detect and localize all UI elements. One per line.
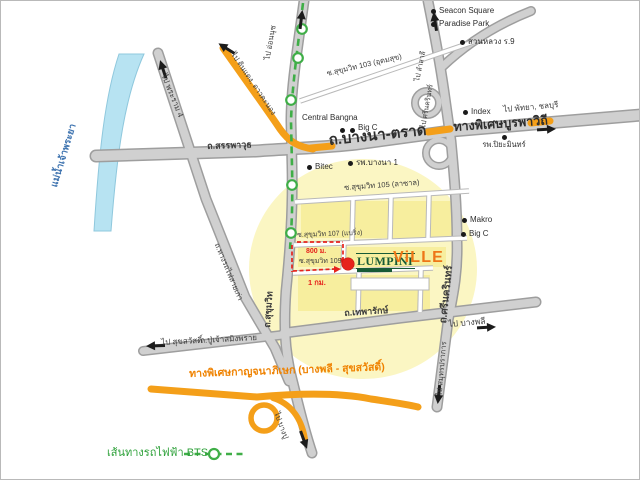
poi-central-bangna: Central Bangna — [302, 114, 358, 122]
poi-label: Paradise Park — [439, 20, 489, 28]
poi-paradise-park: Paradise Park — [431, 20, 489, 28]
location-dot — [461, 232, 466, 237]
poi-label: Seacon Square — [439, 7, 494, 15]
poi-label: Index — [471, 108, 491, 116]
distance-800m: 800 ม. — [306, 248, 326, 255]
location-dot — [340, 128, 345, 133]
soi-label-109: ซ.สุขุมวิท 109 — [299, 258, 342, 265]
poi-label: รพ.บางนา 1 — [356, 159, 398, 167]
poi-label: รพ.ปิยะมินทร์ — [482, 141, 525, 149]
map-graphics — [1, 1, 640, 480]
legend-bts-station — [209, 449, 219, 459]
location-dot — [431, 22, 436, 27]
location-dot — [348, 161, 353, 166]
poi-label: Big C — [469, 230, 489, 238]
poi-bangna1-hospital: รพ.บางนา 1 — [348, 159, 398, 167]
location-dot — [460, 40, 465, 45]
poi-bigc-srinakarin: Big C — [461, 230, 489, 238]
poi-piyamin-hospital: รพ.ปิยะมินทร์ — [477, 135, 531, 149]
location-dot — [462, 218, 467, 223]
location-dot — [350, 128, 355, 133]
poi-label: Bitec — [315, 163, 333, 171]
poi-bigc-bangna: Big C — [358, 124, 378, 132]
poi-label: Makro — [470, 216, 492, 224]
project-marker-dot — [342, 258, 355, 271]
poi-makro: Makro — [462, 216, 492, 224]
location-dot — [307, 165, 312, 170]
location-dot — [463, 110, 468, 115]
river-shape — [94, 54, 144, 231]
poi-bitec: Bitec — [307, 163, 333, 171]
poi-label: สวนหลวง ร.9 — [468, 38, 515, 46]
soi-block — [351, 278, 429, 290]
location-map: แม่น้ำเจ้าพระยา ถ.สรรพาวุธ ถ.บางนา-ตราด … — [0, 0, 640, 480]
logo-ville: ViLLE — [393, 250, 444, 266]
poi-index: Index — [463, 108, 491, 116]
legend-bts-label: เส้นทางรถไฟฟ้า BTS — [107, 448, 208, 459]
poi-suanluang-r9: สวนหลวง ร.9 — [460, 38, 515, 46]
poi-seacon-square: Seacon Square — [431, 7, 494, 15]
road-label-sanphawut: ถ.สรรพาวุธ — [207, 140, 252, 151]
location-dot — [431, 9, 436, 14]
logo-subtext-bar — [357, 268, 392, 272]
distance-1km: 1 กม. — [308, 279, 326, 287]
